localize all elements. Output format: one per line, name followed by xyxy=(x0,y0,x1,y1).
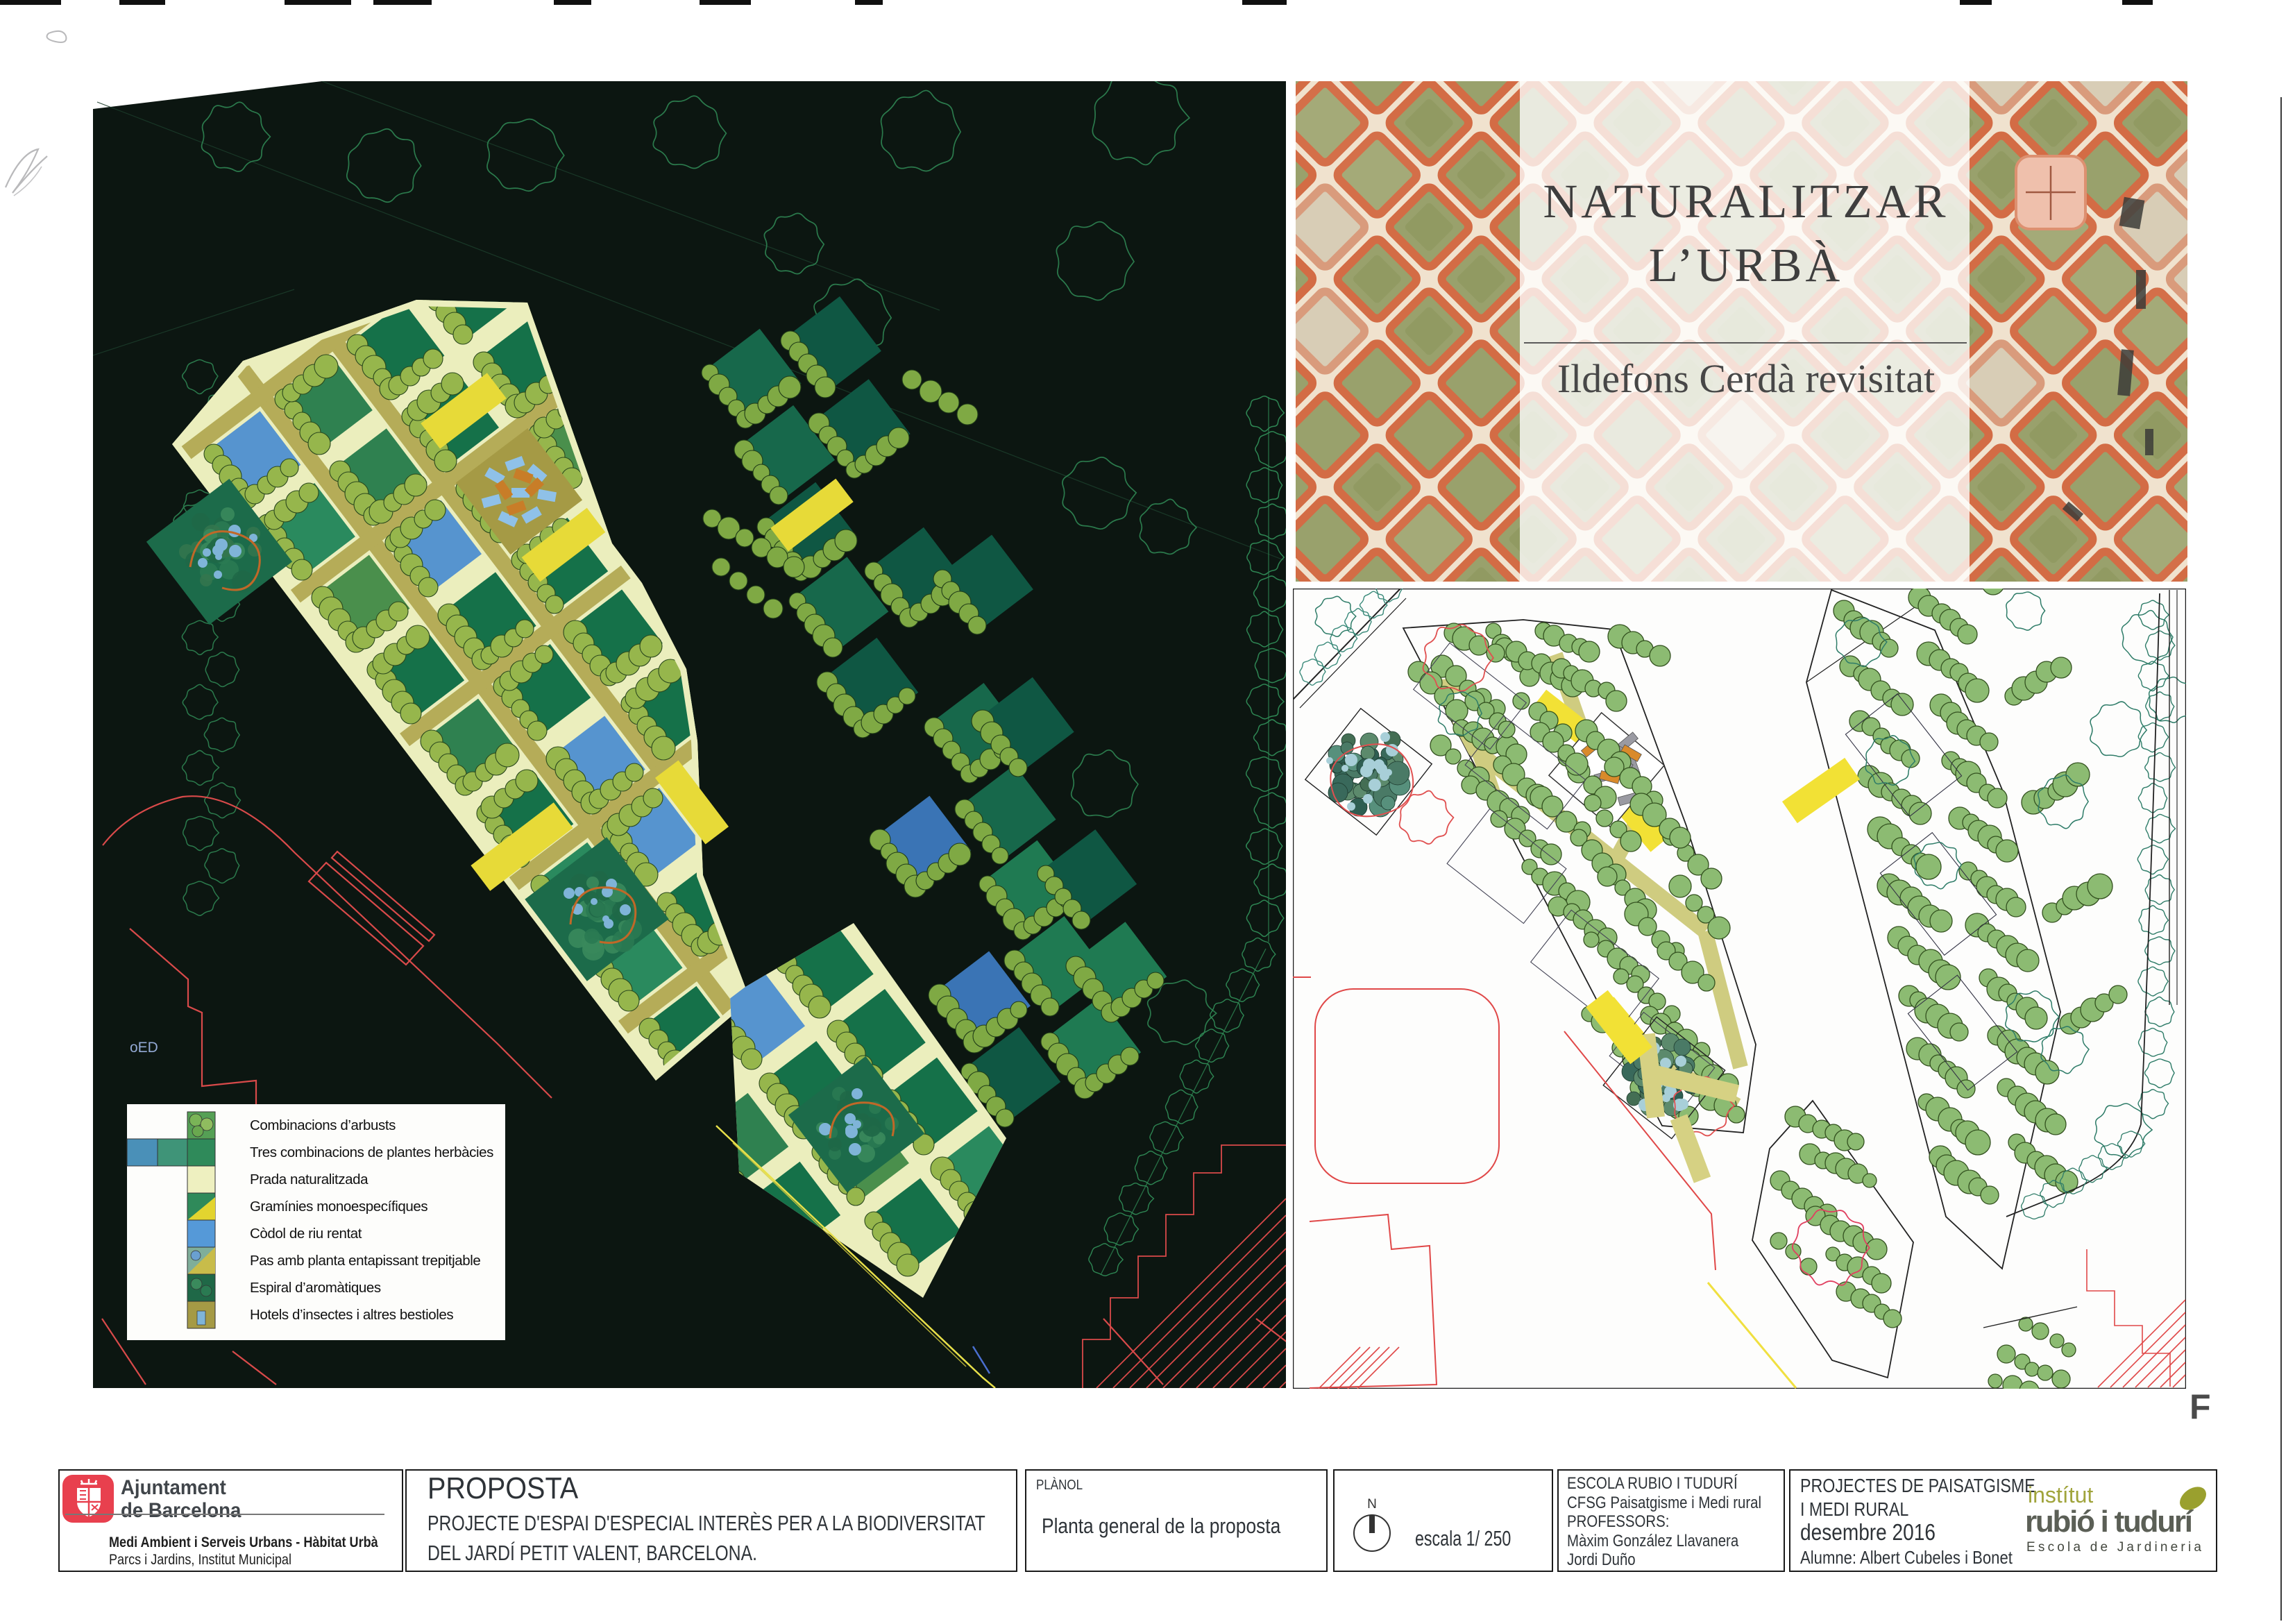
svg-text:Còdol de riu rentat: Còdol de riu rentat xyxy=(250,1226,362,1242)
svg-text:L’URBÀ: L’URBÀ xyxy=(1649,239,1844,291)
svg-text:Tres combinacions de plantes h: Tres combinacions de plantes herbàcies xyxy=(250,1144,493,1160)
svg-text:Pas amb planta entapissant tre: Pas amb planta entapissant trepitjable xyxy=(250,1253,480,1269)
svg-text:rubió i tudurí: rubió i tudurí xyxy=(2025,1505,2194,1539)
svg-text:Combinacions d’arbusts: Combinacions d’arbusts xyxy=(250,1117,396,1133)
svg-text:Gramínies monoespecífiques: Gramínies monoespecífiques xyxy=(250,1199,427,1215)
svg-text:NATURALITZAR: NATURALITZAR xyxy=(1543,175,1949,228)
svg-text:Espiral d’aromàtiques: Espiral d’aromàtiques xyxy=(250,1280,381,1296)
svg-text:Prada naturalitzada: Prada naturalitzada xyxy=(250,1172,369,1187)
svg-text:Hotels d’insectes i altres bes: Hotels d’insectes i altres bestioles xyxy=(250,1307,453,1323)
svg-text:oED: oED xyxy=(130,1040,158,1056)
svg-text:instítut: instítut xyxy=(2028,1482,2093,1507)
svg-text:N: N xyxy=(1367,1497,1377,1512)
svg-text:Escola de Jardineria: Escola de Jardineria xyxy=(2026,1540,2204,1555)
svg-text:Ildefons Cerdà revisitat: Ildefons Cerdà revisitat xyxy=(1557,356,1935,401)
